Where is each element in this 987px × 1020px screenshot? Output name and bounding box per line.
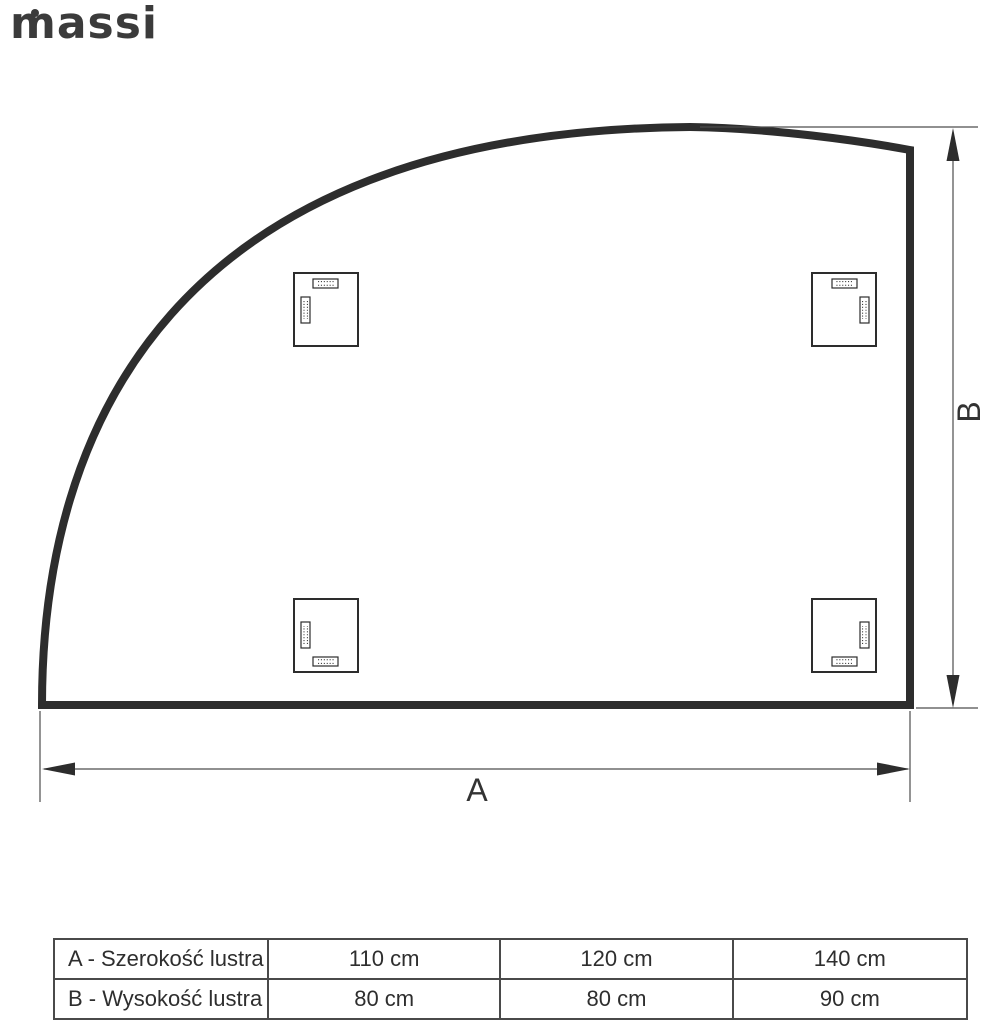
size-table-height-label: B - Wysokość lustra xyxy=(55,980,269,1018)
mount-bracket-top-right xyxy=(812,273,876,346)
size-table: A - Szerokość lustra 110 cm 120 cm 140 c… xyxy=(53,938,968,1020)
size-table-height-value-2: 80 cm xyxy=(501,980,733,1018)
arrow-left-icon xyxy=(42,763,75,776)
size-table-row-width: A - Szerokość lustra 110 cm 120 cm 140 c… xyxy=(55,940,966,978)
width-label: A xyxy=(466,772,488,808)
size-table-row-height: B - Wysokość lustra 80 cm 80 cm 90 cm xyxy=(55,978,966,1018)
arrow-up-icon xyxy=(947,128,960,161)
height-label: B xyxy=(951,401,987,422)
arrow-down-icon xyxy=(947,675,960,708)
mirror-outline xyxy=(42,127,910,705)
mount-bracket-top-left xyxy=(294,273,358,346)
mirror-spec-page: massi xyxy=(0,0,987,1020)
size-table-height-value-3: 90 cm xyxy=(734,980,966,1018)
size-table-width-value-1: 110 cm xyxy=(269,940,501,978)
mount-bracket-bottom-right xyxy=(812,599,876,672)
arrow-right-icon xyxy=(877,763,910,776)
mirror-dimension-diagram: A B xyxy=(0,0,987,870)
size-table-width-label: A - Szerokość lustra xyxy=(55,940,269,978)
mount-bracket-bottom-left xyxy=(294,599,358,672)
size-table-height-value-1: 80 cm xyxy=(269,980,501,1018)
size-table-width-value-3: 140 cm xyxy=(734,940,966,978)
size-table-width-value-2: 120 cm xyxy=(501,940,733,978)
